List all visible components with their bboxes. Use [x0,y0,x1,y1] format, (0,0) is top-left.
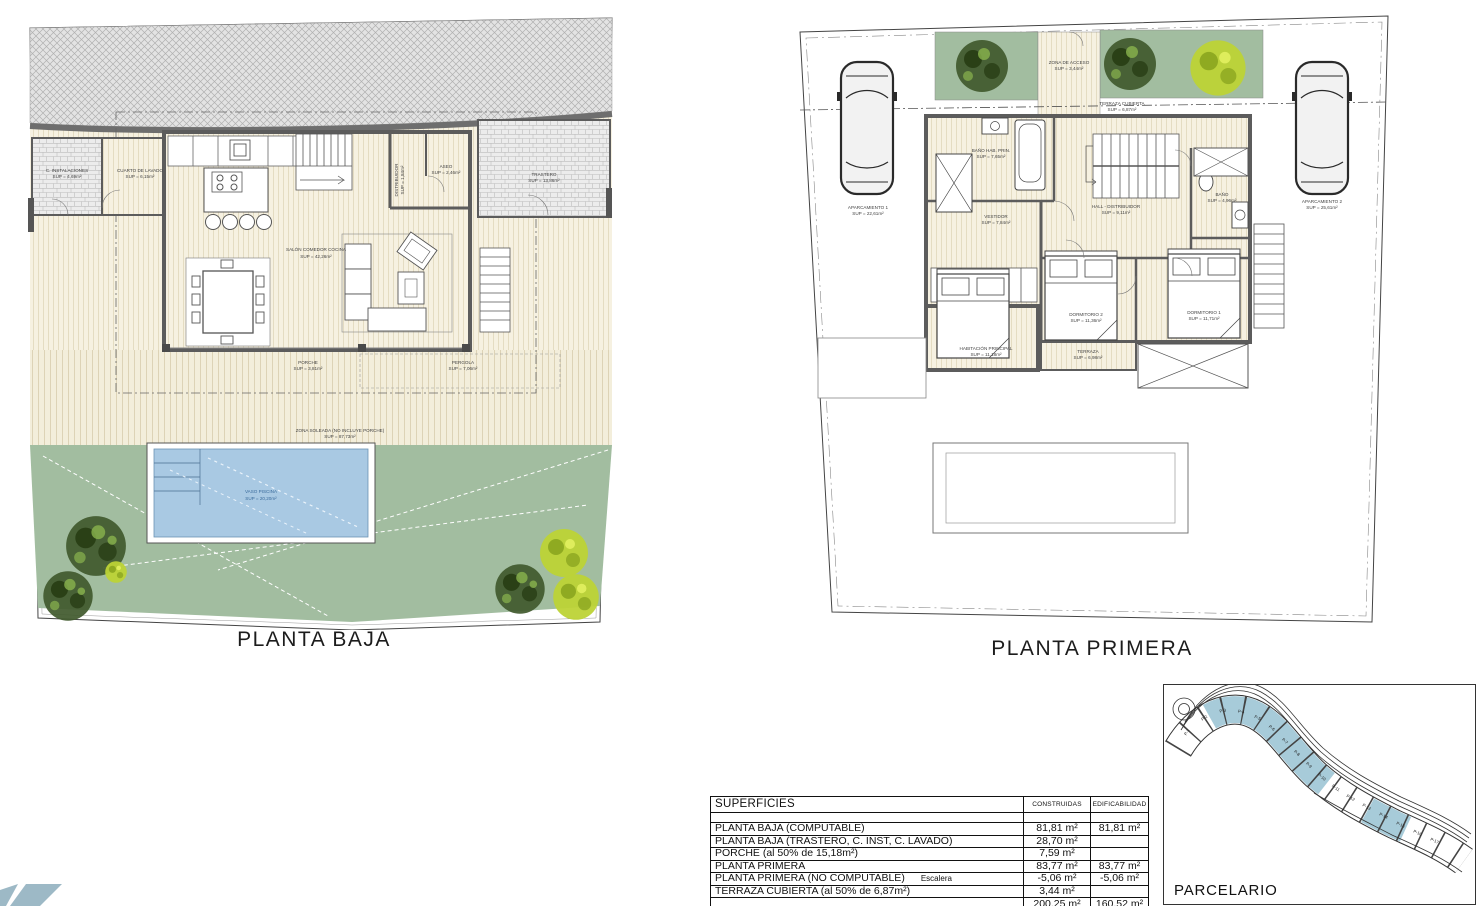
room-label-vestidor: VESTIDOR SUP = 7,84m² [982,214,1011,225]
svg-text:BAÑO: BAÑO [1215,191,1228,197]
car-aparcamiento-1 [837,62,897,194]
svg-text:SALÓN COMEDOR COCINA: SALÓN COMEDOR COCINA [286,246,347,252]
table-row: TERRAZA CUBIERTA (al 50% de 6,87m²) 3,44… [711,885,1148,898]
svg-text:ASEO: ASEO [440,164,453,169]
svg-text:SUP = 6,98m²: SUP = 6,98m² [1074,355,1103,360]
svg-text:SUP = 87,73m²: SUP = 87,73m² [324,434,356,439]
kitchen-counter [168,136,313,166]
parcelario-map: P-1 P-2 P-3 P-4 P-5 P-6 P-7 P-8 P-9 P-10… [1164,685,1473,902]
svg-text:CUARTO DE LAVADO: CUARTO DE LAVADO [117,168,164,173]
svg-text:SUP = 42,26m²: SUP = 42,26m² [300,254,332,259]
svg-text:HABITACIÓN PRINCIPAL: HABITACIÓN PRINCIPAL [960,345,1013,351]
svg-text:SUP = 22,61m²: SUP = 22,61m² [852,211,884,216]
svg-text:SUP = 7,84m²: SUP = 7,84m² [982,220,1011,225]
svg-text:SUP = 7,65m²: SUP = 7,65m² [977,154,1006,159]
car-aparcamiento-2 [1292,62,1352,194]
svg-text:ZONA DE ACCESO: ZONA DE ACCESO [1049,60,1090,65]
row-label: PLANTA PRIMERA (NO COMPUTABLE) [715,873,905,885]
kitchen-island [204,168,272,230]
svg-text:SUP = 11,71m²: SUP = 11,71m² [1188,316,1220,321]
svg-text:TERRAZA: TERRAZA [1077,349,1099,354]
planta-primera-plan: ZONA DE ACCESO SUP = 3,44m² TERRAZA CUBI… [786,6,1398,636]
svg-text:C. INSTALACIONES: C. INSTALACIONES [46,168,88,173]
room-label-trastero: TRASTERO SUP = 13,86m² [528,172,560,183]
svg-text:SUP = 2,46m²: SUP = 2,46m² [432,170,461,175]
svg-text:SUP = 3,81m²: SUP = 3,81m² [294,366,323,371]
wall-stub-left [28,198,34,232]
table-row: PLANTA PRIMERA 83,77 m² 83,77 m² [711,860,1148,873]
svg-text:VASO PISCINA: VASO PISCINA [245,489,278,494]
total-construidas: 200,25 m² [1023,898,1090,906]
planta-primera-title: PLANTA PRIMERA [786,637,1398,661]
parcelario-title: PARCELARIO [1174,882,1278,899]
stairs [1086,134,1179,198]
drawing-sheet: C. INSTALACIONES SUP = 4,69m² CUARTO DE … [0,0,1478,906]
table-row: PLANTA BAJA (TRASTERO, C. INST, C. LAVAD… [711,835,1148,848]
planta-baja-title: PLANTA BAJA [8,628,620,652]
svg-text:SUP = 20,20m²: SUP = 20,20m² [245,496,277,501]
parcel-strip [1178,710,1464,861]
svg-text:DORMITORIO 2: DORMITORIO 2 [1069,312,1103,317]
svg-text:SUP = 4,69m²: SUP = 4,69m² [53,174,82,179]
planta-primera-drawing: ZONA DE ACCESO SUP = 3,44m² TERRAZA CUBI… [786,6,1398,636]
svg-text:SUP = 7,06m²: SUP = 7,06m² [449,366,478,371]
table-header-row: SUPERFICIES CONSTRUIDAS EDIFICABILIDAD [711,797,1148,812]
svg-text:SUP = 11,36m²: SUP = 11,36m² [1070,318,1102,323]
svg-text:SUP = 6,15m²: SUP = 6,15m² [126,174,155,179]
svg-text:SUP = 3,44m²: SUP = 3,44m² [1055,66,1084,71]
room-label-distribuidor: DISTRIBUIDOR SUP = 1,84m² [394,163,405,197]
svg-text:BAÑO HAB. PRIN.: BAÑO HAB. PRIN. [972,147,1011,153]
parcelario-panel: P-1 P-2 P-3 P-4 P-5 P-6 P-7 P-8 P-9 P-10… [1163,684,1476,905]
room-label-pergola: PERGOLA SUP = 7,06m² [449,360,478,371]
svg-text:SUP = 11,18m²: SUP = 11,18m² [970,352,1002,357]
svg-text:SUP = 25,61m²: SUP = 25,61m² [1306,205,1338,210]
table-row: PLANTA PRIMERA (NO COMPUTABLE) Escalera … [711,872,1148,885]
svg-text:SUP = 9,11m²: SUP = 9,11m² [1102,210,1131,215]
bed-dormitorio-2 [1045,251,1117,340]
table-spacer-row [711,812,1148,822]
svg-text:PERGOLA: PERGOLA [452,360,475,365]
dining-table [186,258,270,346]
col-edificabilidad: EDIFICABILIDAD [1090,797,1148,812]
stairs [296,134,352,190]
svg-text:DORMITORIO 1: DORMITORIO 1 [1187,310,1221,315]
svg-text:TRASTERO: TRASTERO [531,172,556,177]
planta-baja-plan: C. INSTALACIONES SUP = 4,69m² CUARTO DE … [8,8,620,630]
room-label-aparcamiento-1: APARCAMIENTO 1 SUP = 22,61m² [848,205,889,216]
svg-text:SUP = 1,84m²: SUP = 1,84m² [400,165,405,194]
svg-text:SUP = 6,87m²: SUP = 6,87m² [1108,107,1137,112]
wall-stub-right [606,188,612,218]
table-total-row: 200,25 m² 160,52 m² [711,897,1148,906]
room-label-dormitorio-2: DORMITORIO 2 SUP = 11,36m² [1069,312,1103,323]
exterior-stair [1254,224,1284,328]
svg-text:HALL - DISTRIBUIDOR: HALL - DISTRIBUIDOR [1092,204,1141,209]
svg-text:APARCAMIENTO 2: APARCAMIENTO 2 [1302,199,1343,204]
table-title: SUPERFICIES [711,797,1023,812]
svg-text:SUP = 4,96m²: SUP = 4,96m² [1208,198,1237,203]
table-row: PORCHE (al 50% de 15,18m²) 7,59 m² [711,847,1148,860]
planta-baja-drawing: C. INSTALACIONES SUP = 4,69m² CUARTO DE … [8,8,620,630]
svg-text:SUP = 13,86m²: SUP = 13,86m² [528,178,560,183]
row-note: Escalera [921,873,952,885]
svg-text:DISTRIBUIDOR: DISTRIBUIDOR [394,163,399,197]
logo-mark [0,868,80,906]
bed-principal [937,269,1009,358]
room-label-terraza: TERRAZA SUP = 6,98m² [1074,349,1103,360]
svg-text:ZONA SOLEADA (NO INCLUYE PORCH: ZONA SOLEADA (NO INCLUYE PORCHE) [296,428,385,433]
svg-text:APARCAMIENTO 1: APARCAMIENTO 1 [848,205,889,210]
svg-text:PORCHE: PORCHE [298,360,318,365]
room-label-aparcamiento-2: APARCAMIENTO 2 SUP = 25,61m² [1302,199,1343,210]
table-row: PLANTA BAJA (COMPUTABLE) 81,81 m² 81,81 … [711,822,1148,835]
svg-text:TERRAZA CUBIERTA: TERRAZA CUBIERTA [1099,101,1145,106]
superficies-table: SUPERFICIES CONSTRUIDAS EDIFICABILIDAD P… [710,796,1149,906]
total-edificabilidad: 160,52 m² [1090,898,1148,906]
slope-hatch-band [30,18,612,127]
room-label-dormitorio-1: DORMITORIO 1 SUP = 11,71m² [1187,310,1221,321]
bed-dormitorio-1 [1168,249,1240,338]
room-trastero [478,120,610,217]
svg-text:VESTIDOR: VESTIDOR [984,214,1008,219]
col-construidas: CONSTRUIDAS [1023,797,1090,812]
exterior-stair [480,248,510,332]
